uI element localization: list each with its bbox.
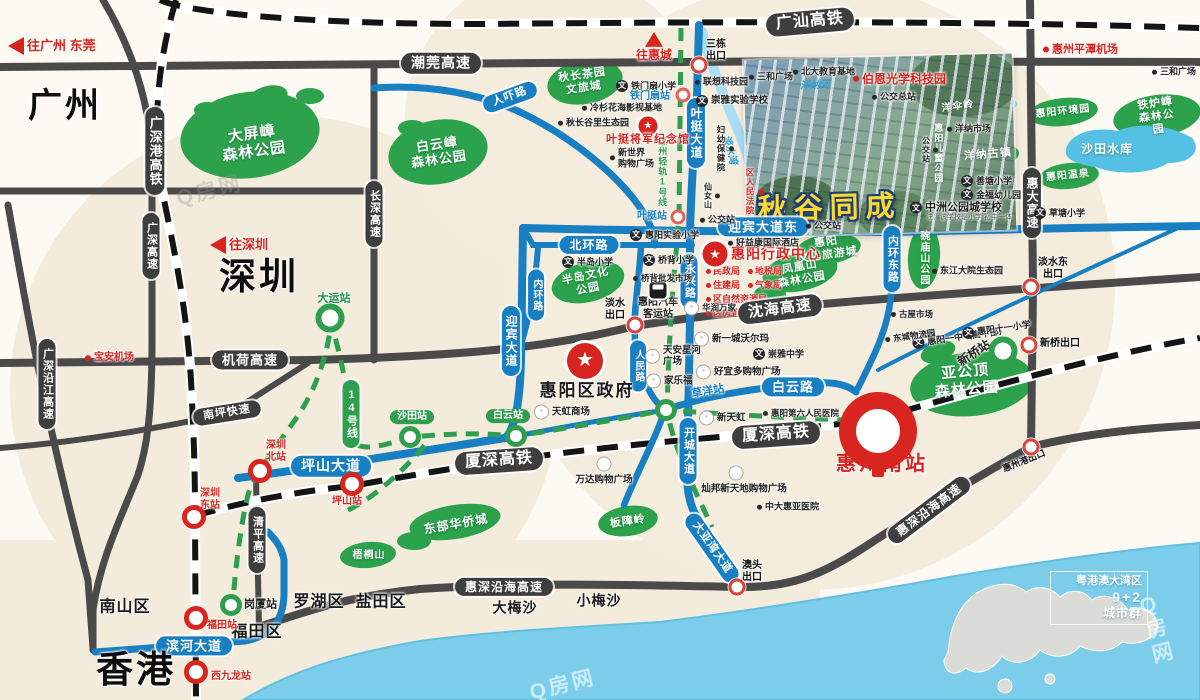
station-label: 福田站 (207, 620, 237, 632)
label-text: 桥背小学 (658, 255, 694, 266)
shopping-icon: ▪ (699, 411, 714, 426)
label-text: 好益康国际酒店 (736, 238, 799, 249)
poi-label: 文半岛小学 (562, 256, 613, 268)
rail-station-icon-futian (184, 606, 208, 630)
label-text: 区人民法院 (745, 168, 755, 216)
exit-label: 澳头 出口 (742, 560, 762, 584)
map-canvas: 秋谷同成 民政局地税局住建局气象局区自然资源局区房管局 粤港澳大湾区 9+2 城… (0, 0, 1200, 700)
to-guangzhou-dongguan-arrow: 往广州 东莞 (8, 37, 96, 55)
poi-dot-icon (700, 217, 705, 222)
park-label: 洋纳古镇 (964, 146, 1013, 163)
label-text: 天虹商场 (552, 406, 590, 417)
district-gov-star-icon: ★ (567, 343, 603, 379)
label-text: 梧桐山 (353, 550, 386, 562)
exit-label: 淡水东 出口 (1038, 257, 1068, 281)
label-text: 宝安机场 (94, 352, 134, 364)
label-text: 迎宾大道 (504, 315, 518, 367)
label-text: 家乐福 (664, 375, 693, 386)
poi-label: 文草塘小学 (1034, 207, 1085, 219)
huizhou-lightrail-line1-label: 惠州轻轨1号线 (657, 137, 668, 208)
road-label-baiyun-rd: 白云路 (762, 377, 824, 396)
poi-dot-icon (872, 94, 877, 99)
poi-label: 灿邦新天地购物广场 (701, 483, 787, 494)
road-label-nanping-expwy: 南坪快速 (192, 399, 262, 426)
poi-dot-icon (582, 105, 587, 110)
label-text: 白云嶂 森林公园 (408, 133, 468, 171)
label-text: 公交站 (708, 215, 735, 226)
label-text: 联想科技园 (703, 77, 748, 88)
label-text: 潮莞高速 (411, 55, 471, 72)
district-label-yantian: 盐田区 (355, 594, 406, 613)
lightrail-station-icon-tiemenshan (676, 88, 691, 103)
label-text: 金福幼儿园 (976, 190, 1021, 201)
label-text: ★ (709, 246, 721, 261)
label-text: 冷杉花海影视基地 (590, 103, 662, 114)
poi-label: 桥背批发市场 (633, 273, 692, 283)
label-text: 内环东路 (886, 235, 899, 283)
poi-label: 秋长谷里生态园 (558, 118, 629, 129)
poi-dot-icon-red (85, 355, 91, 361)
label-text: 南山区 (99, 599, 150, 618)
park-label: 亚公顶 森林公园 (933, 361, 1000, 402)
label-text: 古屋市场 (899, 309, 933, 319)
poi-label: 公交站 (700, 215, 735, 226)
metro-line14-label: 14号线 (343, 380, 360, 448)
station-label: 岗厦站 (244, 599, 277, 612)
road-label-dayawan-ave: 大亚湾大道 (682, 510, 742, 585)
station-label: 叶挺站 (637, 211, 667, 223)
place-label-dameisha: 大梅沙 (493, 600, 538, 617)
poi-label: 文善塘小学 (961, 175, 1012, 187)
label-text: 中大惠亚医院 (765, 502, 819, 513)
label-text: 澳头 出口 (742, 560, 762, 584)
label-text: Q房网 (1138, 588, 1191, 669)
park-label: 大屏嶂 森林公园 (219, 121, 287, 165)
park-label: 白云嶂 森林公园 (408, 133, 468, 171)
label-text: Q房网 (174, 172, 245, 212)
note-label: 注：该学校是小学 初中一体 (926, 214, 1012, 222)
label-text: 厦深高铁 (741, 423, 810, 447)
label-text: 小梅沙 (577, 593, 622, 610)
shopping-icon: ▪ (694, 332, 709, 347)
road-label-guangshan-hsr: 广汕高铁 (765, 7, 855, 37)
label-text: 公交站 (814, 221, 841, 232)
poi-label: 惠阳第六人民医院 (763, 408, 839, 418)
city-label-guangzhou: 广州 (28, 86, 102, 126)
label-text: 香港 (96, 648, 176, 692)
label-text: 妇幼保健院 (716, 125, 726, 173)
label-text: 沙田站 (397, 411, 427, 423)
label-text: 华润万家 (702, 303, 736, 313)
label-text: 北环路 (569, 238, 608, 252)
road-label-neihuan-rd: 内环路 (528, 270, 544, 321)
label-text: 白云站 (493, 410, 523, 422)
rail-station-icon-west-kowloon (184, 660, 208, 684)
school-icon: 文 (630, 229, 642, 241)
exit-circle-xinqiao (1021, 337, 1038, 354)
road-label-jihe-expwy: 机荷高速 (212, 350, 288, 369)
exit-circle-danshui (627, 317, 644, 334)
shopping-icon: ▪ (646, 374, 661, 389)
exit-circle-sandong (691, 57, 708, 74)
station-label: 西九龙站 (211, 671, 251, 683)
school-icon: 文 (616, 80, 628, 92)
label-text: 三栋 出口 (706, 39, 726, 63)
park-label: 秋长茶园 文旅城 (557, 66, 608, 98)
huizhou-south-station-icon (839, 392, 917, 470)
poi-dot-icon (793, 69, 798, 74)
poi-label: 联想科技园 (695, 77, 748, 88)
label-text: 淡水 出口 (605, 298, 625, 322)
to-shenzhen-arrow: 往深圳 (210, 236, 268, 254)
road-label-shenhai-expwy: 沈海高速 (737, 293, 823, 325)
poi-dot-icon (947, 126, 952, 131)
label-text: 叶挺站 (637, 211, 667, 223)
poi-dot-icon (715, 194, 720, 199)
label-text: 三和广场 (1160, 67, 1196, 78)
poi-label: 文金福幼儿园 (961, 189, 1021, 201)
road-label-beihuan-rd: 北环路 (559, 236, 618, 254)
poi-label: 区人民法院 (745, 168, 764, 216)
label-text: 惠大高速 (1025, 177, 1039, 229)
arrow-up-icon (645, 32, 663, 47)
label-text: ★ (644, 120, 653, 132)
road-label-huishen-coastal-east: 惠深沿海高速 (884, 473, 973, 546)
district-gov-title: 惠阳区政府 (540, 381, 635, 401)
school-icon: 文 (562, 256, 574, 268)
label-text: 往广州 东莞 (27, 38, 96, 53)
rail-station-icon-pingshan (340, 472, 364, 496)
label-text: 板障岭 (609, 513, 646, 531)
park-label: 惠阳温泉 (1046, 168, 1091, 184)
map-labels-layer: 潮莞高速广汕高铁机荷高速南坪快速沈海高速厦深高铁厦深高铁惠深沿海高速惠深沿海高速… (0, 0, 1200, 700)
label-text: 洋纳市场 (955, 124, 991, 135)
station-label: 深圳 北站 (266, 440, 286, 464)
label-text: 好宜多购物广场 (714, 366, 781, 377)
arrow-left-icon (210, 236, 226, 254)
exit-circle-danshui-east (1023, 279, 1040, 296)
poi-label: 公交总站 (872, 92, 916, 103)
poi-label: 公交站 (806, 221, 841, 232)
label-text: 叶挺大道 (689, 107, 703, 159)
label-text: 惠阳汽车 客运站 (638, 297, 678, 321)
label-text: 14号线 (345, 389, 358, 439)
label-text: 新天虹 (717, 412, 746, 423)
label-text: 福田站 (207, 620, 237, 632)
road-label-renxia-rd: 人吓路 (481, 79, 539, 114)
poi-label: 万达购物广场 (575, 474, 632, 485)
shopping-icon (729, 466, 744, 481)
label-text: 机荷高速 (222, 352, 278, 367)
poi-dot-icon (763, 410, 768, 415)
school-icon: 文 (643, 254, 655, 266)
label-text: 铁门扇小学 (631, 81, 676, 92)
park-label: 东部华侨城 (423, 511, 489, 536)
label-text: 广州 (28, 86, 102, 126)
label-text: 北大教育基地 (801, 67, 855, 78)
label-text: 东江大院生态园 (940, 266, 1003, 277)
label-text: 善塘小学 (976, 176, 1012, 187)
park-label: 铁炉嶂 森林公园 (1133, 95, 1181, 140)
label-text: 往惠城 (636, 48, 672, 62)
label-text: 深圳 北站 (266, 440, 286, 464)
label-text: 惠阳环境园 (1035, 103, 1091, 120)
shopping-icon (597, 457, 612, 472)
poi-dot-icon (610, 156, 615, 161)
poi-dot-icon (932, 268, 937, 273)
label-text: 惠州平潭机场 (1052, 44, 1118, 57)
poi-label: ▪新天虹 (699, 411, 746, 426)
poi-label: 文崇雅实验学校 (696, 95, 768, 107)
city-label-shenzhen: 深圳 (219, 255, 299, 299)
metro-station-icon-xinqiao (989, 337, 1018, 366)
park-label: 碗庙山公园 (917, 231, 929, 286)
station-label: 草洋站 (691, 383, 726, 402)
road-label-gsg-hsr: 广深港高铁 (145, 107, 164, 195)
label-text: 秋长谷里生态园 (566, 118, 629, 129)
park-label: 洋伞岭 (941, 99, 975, 115)
school-icon: 文 (962, 326, 976, 340)
label-text: 广汕高铁 (775, 10, 844, 35)
park-label: 梧桐山 (353, 550, 386, 562)
poi-dot-icon (695, 79, 700, 84)
label-text: 伯恩光学科技园 (862, 72, 946, 86)
exit-circle-aotou (729, 579, 746, 596)
label-text: 深圳 (219, 255, 299, 299)
label-text: 清平高速 (251, 516, 264, 564)
label-text: 沙田水库 (1081, 142, 1133, 156)
poi-dot-icon (933, 148, 938, 153)
poi-label: ▪华润万家 (684, 301, 736, 316)
poi-pingtan-airport: 惠州平潭机场 (1043, 44, 1118, 57)
label-text: 公交站 (921, 137, 930, 164)
exit-label: 三栋 出口 (706, 39, 726, 63)
district-label-nanshan: 南山区 (99, 599, 150, 618)
poi-label: ▪家乐福 (646, 374, 693, 389)
label-text: 新世界 购物广场 (618, 147, 654, 168)
rail-station-icon-shenzhen-east (182, 505, 206, 529)
label-text: 秋长茶园 文旅城 (557, 66, 608, 98)
poi-dot-icon (806, 223, 811, 228)
poi-dot-icon (633, 275, 638, 280)
label-text: 盐田区 (355, 594, 406, 613)
label-text: 惠州轻轨1号线 (657, 137, 668, 208)
poi-dot-icon-red (853, 76, 859, 82)
rail-station-icon-shenzhen-north (248, 459, 272, 483)
watermark: Q房网 (527, 666, 598, 700)
label-text: 广深沿江高速 (41, 348, 54, 420)
station-label: 白云站 (486, 409, 530, 423)
road-label-xiashen-hsr-west: 厦深高铁 (454, 447, 543, 476)
poi-dot-icon (891, 311, 896, 316)
poi-label: 公交站 (921, 137, 938, 164)
label-text: 半岛文化 公园 (561, 265, 613, 300)
school-icon: 文 (696, 95, 708, 107)
label-text: 注：该学校是小学 初中一体 (926, 214, 1012, 222)
poi-label: 文崇雅中学 (753, 348, 804, 360)
label-text: 大亚湾大道 (689, 520, 734, 577)
exit-label: 淡水 出口 (605, 298, 625, 322)
road-label-guangshen-expwy: 广深高速 (143, 213, 160, 279)
station-label: 沙田站 (390, 410, 434, 424)
label-text: 惠阳实验小学 (645, 230, 699, 241)
admin-center-star-icon: ★ (703, 242, 728, 267)
road-label-qingping-expwy: 清平高速 (249, 507, 266, 573)
school-icon: 文 (1034, 207, 1046, 219)
metro-station-icon-baiyun (505, 425, 527, 447)
shopping-icon: ▪ (684, 301, 699, 316)
label-text: 东部华侨城 (423, 511, 489, 536)
label-text: 人民路 (632, 350, 644, 383)
poi-label: ▪新一城沃尔玛 (694, 332, 769, 347)
poi-dot-icon (757, 504, 762, 509)
place-label-xiaomeisha: 小梅沙 (577, 593, 622, 610)
poi-label: 文惠阳实验小学 (630, 229, 699, 241)
metro-station-icon-dayun (316, 304, 345, 333)
label-text: 草塘小学 (1049, 208, 1085, 219)
lake-label-shatian: 沙田水库 (1081, 142, 1133, 156)
label-text: 桥背批发市场 (641, 273, 692, 283)
poi-label: 冷杉花海影视基地 (582, 103, 662, 114)
label-text: 万达购物广场 (575, 474, 632, 485)
arrow-left-icon (8, 37, 24, 55)
road-label-pingshan-ave: 坪山大道 (291, 456, 371, 477)
school-icon: 文 (961, 175, 973, 187)
park-label: 半岛文化 公园 (561, 265, 613, 300)
label-text: 大屏嶂 森林公园 (219, 121, 287, 165)
label-text: 内环路 (530, 279, 542, 312)
poi-label: ▪好宜多购物广场 (696, 365, 781, 380)
poi-label: 新世界 购物广场 (610, 147, 654, 168)
poi-dot-icon (729, 147, 734, 152)
yeting-memorial-label: 叶挺将军纪念馆 (606, 134, 690, 147)
label-text: 坪山站 (332, 496, 362, 508)
label-text: 新一城沃尔玛 (712, 333, 769, 344)
label-text: 罗湖区 (293, 594, 344, 613)
poi-label: 伯恩光学科技园 (853, 72, 946, 86)
park-label: 板障岭 (609, 513, 646, 531)
road-label-neihuan-east-rd: 内环东路 (884, 226, 901, 292)
label-text: 白云路 (772, 379, 814, 394)
label-text: ★ (576, 349, 594, 373)
label-text: 铁门扇站 (630, 91, 670, 103)
label-text: 中洲公园城学校 (925, 202, 1002, 215)
poi-dot-icon-red (1043, 47, 1049, 53)
label-text: 开城大道 (682, 427, 695, 475)
station-label: 坪山站 (332, 496, 362, 508)
label-text: 仙女山 (703, 183, 712, 210)
poi-dot-icon (749, 74, 754, 79)
label-text: 岗厦站 (244, 599, 277, 612)
label-text: 洋纳古镇 (964, 146, 1013, 163)
poi-label: 北大教育基地 (793, 67, 855, 78)
road-label-huida-expwy: 惠大高速 (1023, 168, 1041, 238)
poi-label: 好益康国际酒店 (728, 238, 799, 249)
label-text: 沈海高速 (747, 296, 813, 321)
label-text: 公交总站 (880, 92, 916, 103)
road-label-kaicheng-ave: 开城大道 (680, 418, 697, 484)
label-text: 惠阳区政府 (540, 381, 635, 401)
label-text: 惠阳第六人民医院 (771, 408, 839, 418)
label-text: 人吓路 (491, 85, 529, 109)
poi-label: 三和广场 (749, 72, 793, 83)
poi-label: 仙女山 (703, 183, 720, 210)
label-text: 叶挺将军纪念馆 (606, 134, 690, 147)
label-text: 洋伞岭 (941, 99, 975, 115)
poi-dot-icon (558, 120, 563, 125)
watermark: Q房网 (1138, 588, 1191, 669)
label-text: 厦深高铁 (464, 449, 533, 473)
label-text: 碗庙山公园 (917, 231, 929, 286)
label-text: 洋纳河 (800, 79, 831, 92)
poi-dot-icon (885, 336, 891, 342)
label-text: 南坪快速 (202, 403, 251, 423)
city-label-hongkong: 香港 (96, 648, 176, 692)
poi-dot-icon-red (758, 189, 764, 195)
poi-dot-icon (728, 240, 733, 245)
poi-label: 妇幼保健院 (716, 125, 734, 173)
exit-circle-huizhou-port (1023, 439, 1040, 456)
metro-station-icon-gangxia (220, 594, 242, 616)
poi-dot-icon (1152, 69, 1157, 74)
poi-label: 东江大院生态园 (932, 266, 1003, 277)
poi-label: ▪天安星河 广场 (645, 345, 701, 367)
label-text: 长深高速 (368, 190, 381, 238)
school-icon: 文 (961, 189, 973, 201)
school-icon: 文 (910, 202, 922, 214)
label-text: 新桥出口 (1040, 338, 1080, 350)
label-text: 灿邦新天地购物广场 (701, 483, 787, 494)
poi-label: 洋纳市场 (947, 124, 991, 135)
label-text: 草洋站 (691, 383, 726, 402)
label-text: 往深圳 (229, 237, 268, 252)
shopping-icon: ▪ (696, 365, 711, 380)
label-text: 惠深沿海高速 (894, 481, 965, 539)
district-label-luohu: 罗湖区 (293, 594, 344, 613)
road-label-yanjiang-expwy: 广深沿江高速 (39, 339, 56, 429)
road-label-chaowan-expwy: 潮莞高速 (401, 53, 481, 74)
shopping-icon: ▪ (534, 405, 549, 420)
poi-baoan-airport: 宝安机场 (85, 352, 134, 364)
poi-label: 三和广场 (1152, 67, 1196, 78)
label-text: 福田区 (231, 624, 282, 643)
label-text: 广深高速 (145, 222, 158, 270)
label-text: Q房网 (527, 666, 598, 700)
road-label-yingbin-ave: 迎宾大道 (502, 306, 520, 376)
label-text: 崇雅中学 (768, 349, 804, 360)
metro-station-icon-caoyang (655, 399, 677, 421)
poi-label: 古屋市场 (891, 309, 933, 319)
label-text: 广深港高铁 (147, 116, 162, 186)
poi-label: 中大惠亚医院 (757, 502, 819, 513)
road-label-huishen-coastal-west: 惠深沿海高速 (455, 578, 553, 596)
station-label: 铁门扇站 (630, 91, 670, 103)
label-text: 三和广场 (757, 72, 793, 83)
to-huicheng-arrow: 往惠城 (636, 32, 672, 62)
label-text: 半岛小学 (577, 257, 613, 268)
bus-terminal-icon (650, 282, 667, 299)
bus-terminal-label: 惠阳汽车 客运站 (638, 297, 678, 321)
poi-label: 文桥背小学 (643, 254, 694, 266)
shopping-icon: ▪ (645, 349, 660, 364)
label-text: 亚公顶 森林公园 (933, 361, 1000, 402)
district-label-futian: 福田区 (231, 624, 282, 643)
label-text: 惠阳温泉 (1046, 168, 1091, 184)
label-text: 迎宾大道东 (728, 219, 798, 234)
watermark: Q房网 (174, 172, 245, 212)
label-text: 铁炉嶂 森林公园 (1133, 95, 1181, 140)
school-icon: 文 (753, 348, 765, 360)
